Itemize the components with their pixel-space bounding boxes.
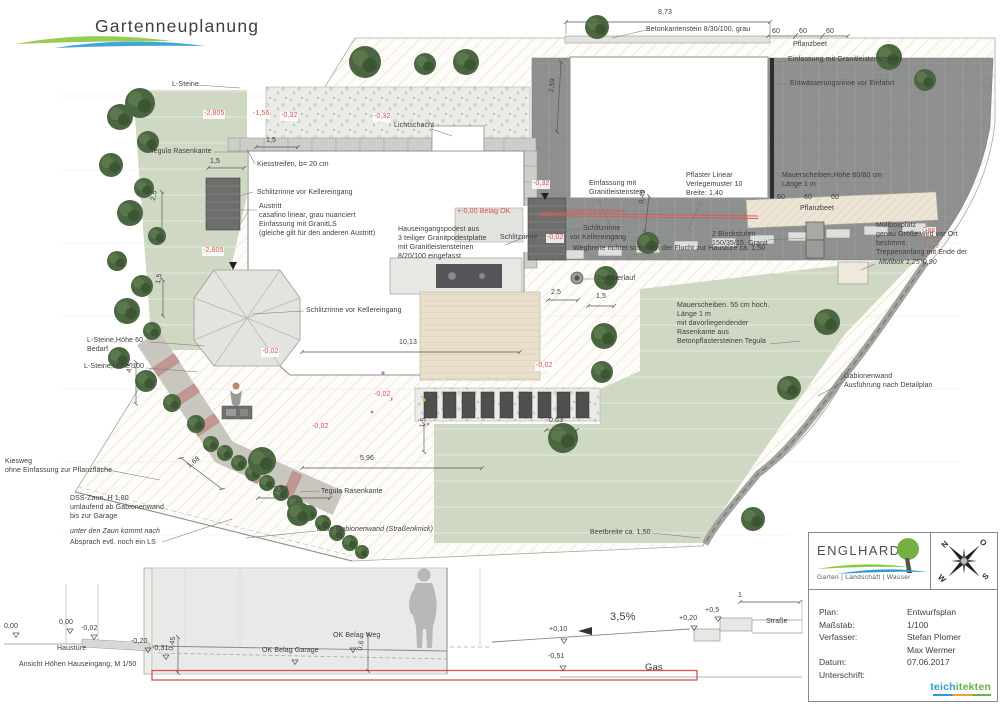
- logo-swoosh: [16, 36, 205, 48]
- field-label: Datum:: [819, 656, 907, 669]
- company-tagline: Garten | Landschaft | Wasser: [817, 574, 911, 581]
- stepping-stones: [415, 388, 600, 421]
- gravel-strip: [266, 87, 530, 140]
- title-block-row: Unterschrift:: [819, 669, 997, 682]
- company-logo: ENGLHARDT Garten | Landschaft | Wasser: [809, 533, 930, 589]
- wood-deck: [420, 292, 540, 380]
- field-label: Verfasser:: [819, 631, 907, 656]
- cellar-stairs: [206, 178, 240, 230]
- drainage-channel: [770, 58, 774, 208]
- garage-footprint: [570, 57, 768, 198]
- muellbox: [838, 262, 868, 284]
- overflow-drain: [571, 272, 583, 284]
- field-label: Plan:: [819, 606, 907, 619]
- title-block-row: Datum:07.06.2017: [819, 656, 997, 669]
- outdoor-kitchen: [390, 258, 522, 294]
- company-name: ENGLHARDT: [817, 543, 910, 558]
- field-label: Maßstab:: [819, 619, 907, 632]
- title-block-row: Verfasser:Stefan Plomer Max Wermer: [819, 631, 997, 656]
- block-steps: [806, 222, 824, 258]
- section-drawing: [4, 568, 802, 680]
- sheet-title: Gartenneuplanung: [95, 16, 259, 37]
- entrance-steps: [528, 193, 566, 260]
- partner-logo: teichitekten: [930, 681, 991, 696]
- plan-sheet: Gartenneuplanung 8,73Betonkantenstein 8/…: [0, 0, 1000, 707]
- field-value: Stefan Plomer Max Wermer: [907, 631, 961, 656]
- partner-logo-subline: [933, 694, 991, 696]
- title-block-fields: Plan:EntwurfsplanMaßstab:1/100Verfasser:…: [809, 590, 997, 681]
- title-block-row: Plan:Entwurfsplan: [819, 606, 997, 619]
- field-value: 1/100: [907, 619, 928, 632]
- partner-logo-part2: itekten: [956, 681, 991, 693]
- field-value: Entwurfsplan: [907, 606, 956, 619]
- partner-logo-part1: teich: [930, 681, 956, 693]
- field-label: Unterschrift:: [819, 669, 907, 682]
- field-value: 07.06.2017: [907, 656, 950, 669]
- title-block-row: Maßstab:1/100: [819, 619, 997, 632]
- title-block: ENGLHARDT Garten | Landschaft | Wasser N: [808, 532, 998, 702]
- compass-rose: N O W S: [930, 533, 997, 589]
- pavilion-roof: [194, 270, 300, 366]
